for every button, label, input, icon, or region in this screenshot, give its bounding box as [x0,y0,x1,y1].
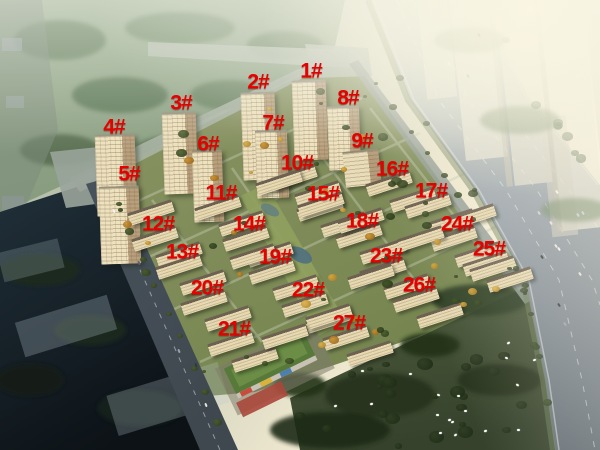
distant-building [6,96,24,108]
terrain-layer [0,0,600,450]
aerial-site-plan: 1#2#3#4#5#6#7#8#9#10#11#12#13#14#15#16#1… [0,0,600,450]
distant-building [2,38,22,51]
